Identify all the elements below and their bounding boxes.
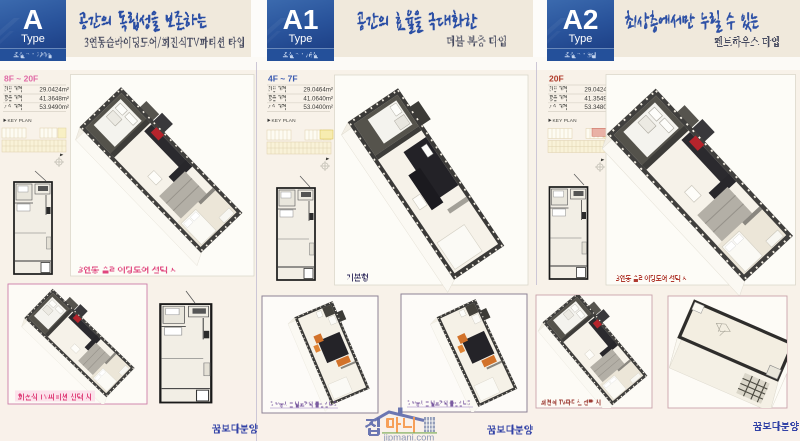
- svg-text:KEY PLAN: KEY PLAN: [272, 118, 297, 124]
- svg-text:29.0464m²: 29.0464m²: [303, 86, 333, 93]
- svg-text:A2: A2: [563, 4, 599, 35]
- svg-text:Type: Type: [289, 33, 313, 45]
- svg-text:41.0640m²: 41.0640m²: [303, 95, 333, 102]
- svg-text:53.0400m²: 53.0400m²: [303, 104, 333, 111]
- svg-text:KEY PLAN: KEY PLAN: [8, 118, 33, 124]
- svg-text:Type: Type: [21, 33, 45, 45]
- svg-text:4F ~ 7F: 4F ~ 7F: [268, 74, 298, 84]
- svg-text:jipmani.com: jipmani.com: [383, 433, 435, 441]
- svg-text:Type: Type: [569, 33, 593, 45]
- svg-text:53.9490m²: 53.9490m²: [39, 104, 69, 111]
- svg-text:29.0424m²: 29.0424m²: [39, 86, 69, 93]
- svg-text:41.3648m²: 41.3648m²: [39, 95, 69, 102]
- svg-text:KEY PLAN: KEY PLAN: [553, 118, 578, 124]
- svg-text:A: A: [23, 4, 43, 35]
- svg-text:A1: A1: [283, 4, 319, 35]
- svg-text:8F ~ 20F: 8F ~ 20F: [4, 74, 38, 84]
- svg-text:20F: 20F: [549, 74, 564, 84]
